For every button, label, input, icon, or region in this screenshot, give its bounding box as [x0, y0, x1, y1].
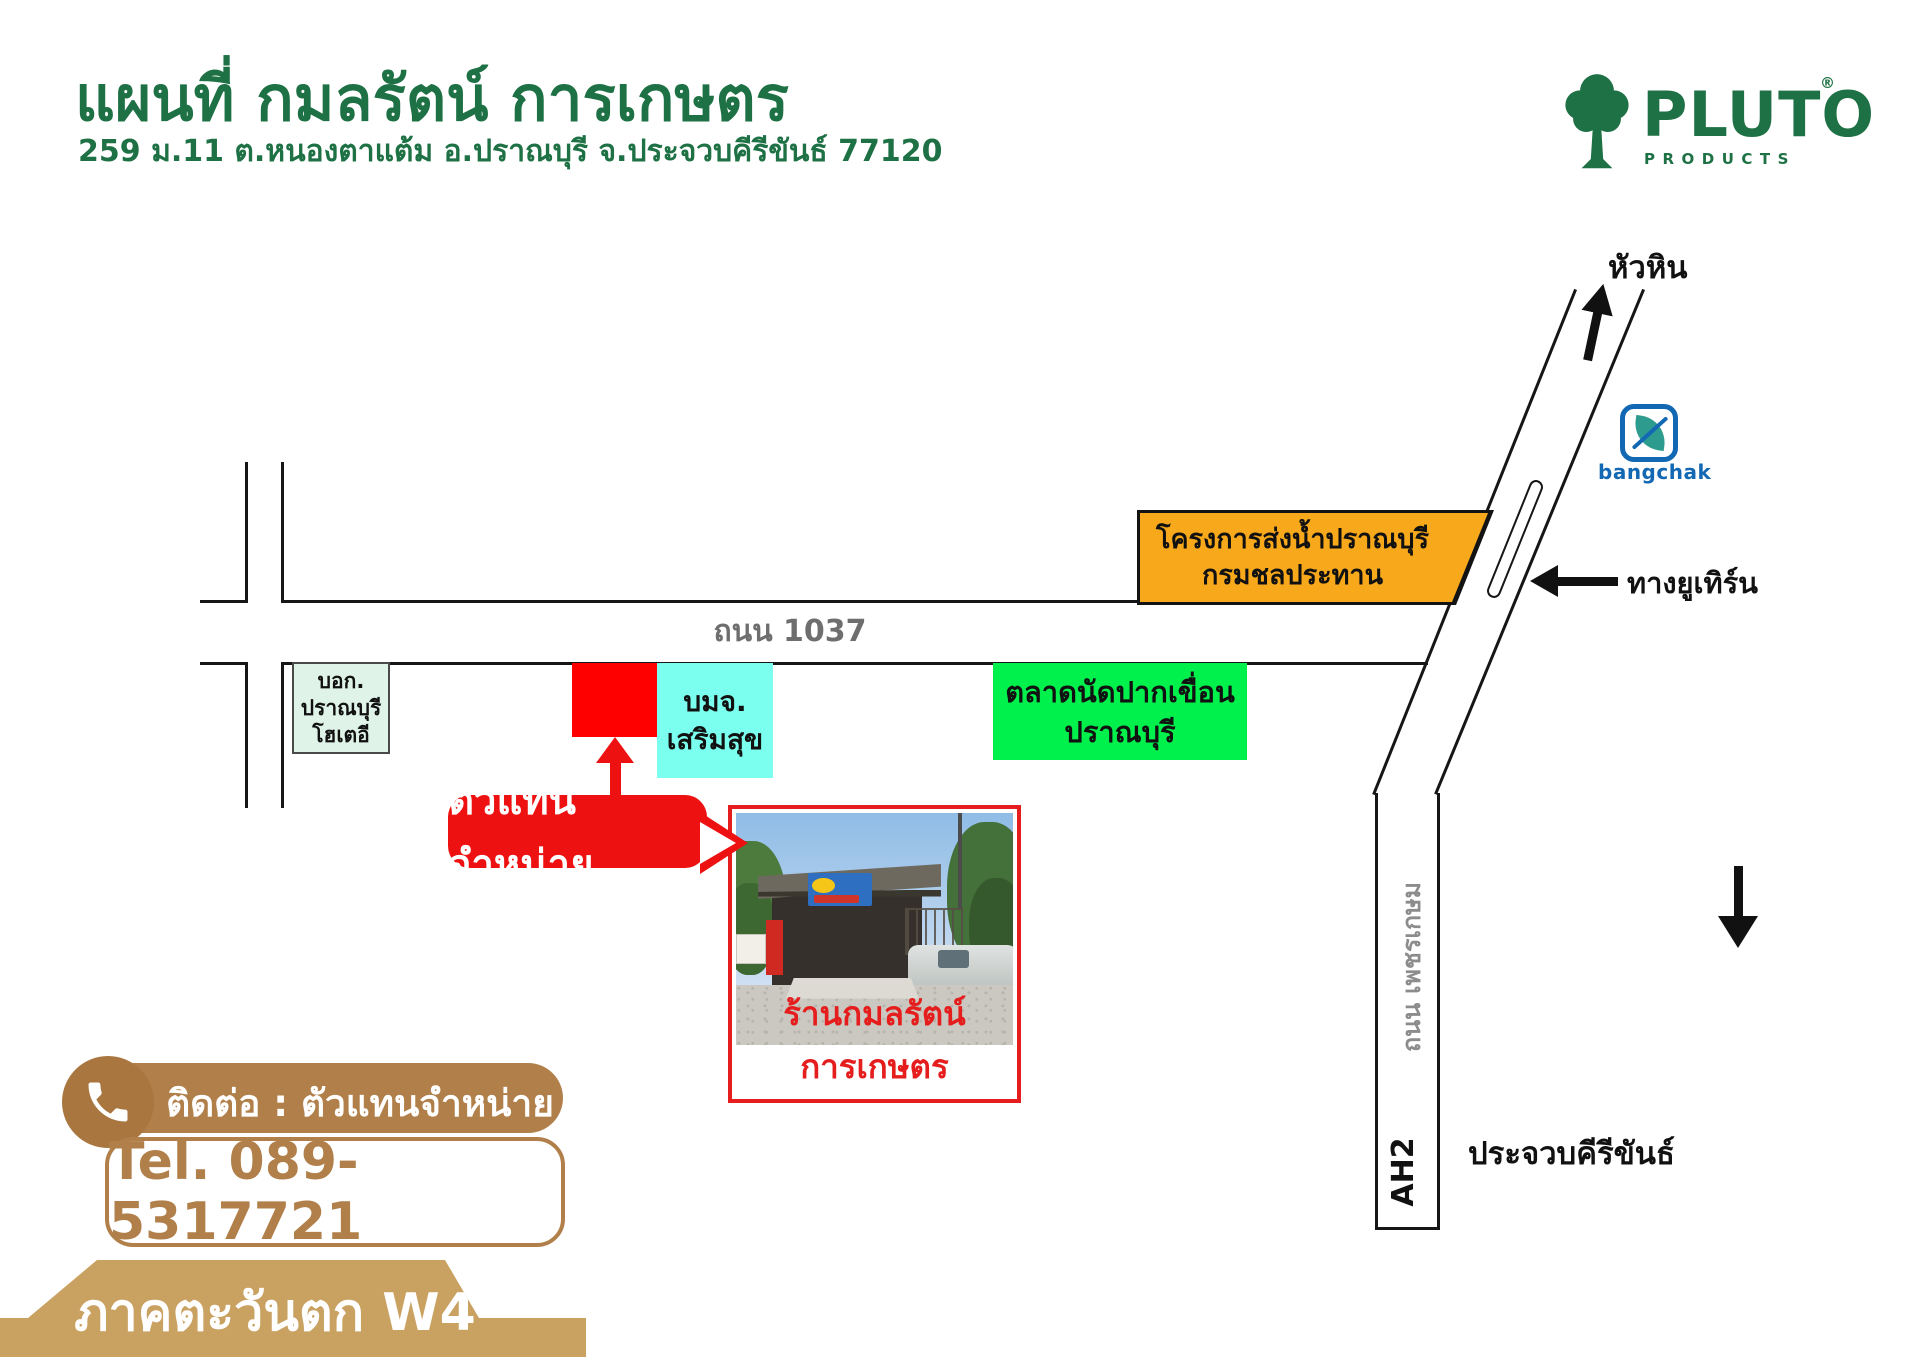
- map-poster: แผนที่ กมลรัตน์ การเกษตร 259 ม.11 ต.หนอง…: [0, 0, 1920, 1357]
- shop-photo-frame: ร้านกมลรัตน์การเกษตร: [728, 805, 1021, 1103]
- photo-caption: ร้านกมลรัตน์การเกษตร: [732, 987, 1017, 1093]
- shop-banner: [808, 873, 872, 905]
- road-line: [281, 462, 284, 603]
- label-uturn: ทางยูเทิร์น: [1627, 560, 1758, 606]
- road-line: [281, 662, 284, 808]
- pluto-logo: PLUTO ® PRODUCTS: [1558, 60, 1878, 180]
- label-road-1037: ถนน 1037: [690, 608, 890, 655]
- road-line: [245, 662, 248, 808]
- phetkasem-vertical-line: [1375, 793, 1378, 1230]
- market-line2: ปราณบุรี: [1005, 712, 1235, 752]
- hotel-line2: ปราณบุรี: [301, 695, 382, 722]
- phetkasem-vertical-line: [1437, 793, 1440, 1230]
- dealer-label: ตัวแทนจำหน่าย: [448, 795, 707, 868]
- brand-name: PLUTO: [1642, 78, 1875, 151]
- market-box: ตลาดนัดปากเขื่อน ปราณบุรี: [993, 663, 1247, 760]
- irrigation-line1: โครงการส่งน้ำปราณบุรี: [1140, 522, 1445, 558]
- phetkasem-end-line: [1375, 1227, 1440, 1230]
- label-phetkasem-road: ถนน เพชรเกษม: [1392, 877, 1418, 1057]
- road-line: [245, 462, 248, 603]
- label-ah2: AH2: [1386, 1137, 1416, 1207]
- label-prachuap: ประจวบคีรีขันธ์: [1468, 1128, 1675, 1178]
- phone-number-box: Tel. 089-5317721: [105, 1137, 565, 1247]
- market-line1: ตลาดนัดปากเขื่อน: [1005, 672, 1235, 712]
- contact-label: ติดต่อ : ตัวแทนจำหน่าย: [160, 1074, 560, 1133]
- bangchak-label: bangchak: [1598, 460, 1702, 484]
- label-huahin: หัวหิน: [1608, 242, 1687, 292]
- phone-number: Tel. 089-5317721: [109, 1132, 561, 1252]
- bangchak-icon: [1620, 404, 1678, 462]
- dealer-label-text: ตัวแทนจำหน่าย: [448, 768, 707, 896]
- road-1037-bottom-line: [281, 662, 1428, 665]
- brand-subtitle: PRODUCTS: [1644, 150, 1796, 168]
- hotel-line1: บอก.: [301, 668, 382, 695]
- region-label: ภาคตะวันตก W4: [70, 1270, 480, 1353]
- road-line: [200, 600, 248, 603]
- sermsuk-box: บมจ. เสริมสุข: [657, 663, 773, 778]
- phone-icon: [82, 1076, 134, 1128]
- region-ribbon: ภาคตะวันตก W4: [0, 1260, 586, 1357]
- dealer-location-marker: [572, 663, 658, 737]
- irrigation-project-box: โครงการส่งน้ำปราณบุรี กรมชลประทาน: [1137, 510, 1496, 605]
- address-line: 259 ม.11 ต.หนองตาแต้ม อ.ปราณบุรี จ.ประจว…: [78, 128, 943, 175]
- tree-icon: [1558, 68, 1636, 176]
- registered-mark: ®: [1820, 74, 1835, 92]
- hotel-line3: โฮเตอี: [301, 722, 382, 749]
- sermsuk-line1: บมจ.: [667, 683, 763, 721]
- sermsuk-line2: เสริมสุข: [667, 721, 763, 759]
- hotel-box: บอก. ปราณบุรี โฮเตอี: [292, 662, 390, 754]
- road-line: [200, 662, 248, 665]
- irrigation-line2: กรมชลประทาน: [1140, 558, 1445, 594]
